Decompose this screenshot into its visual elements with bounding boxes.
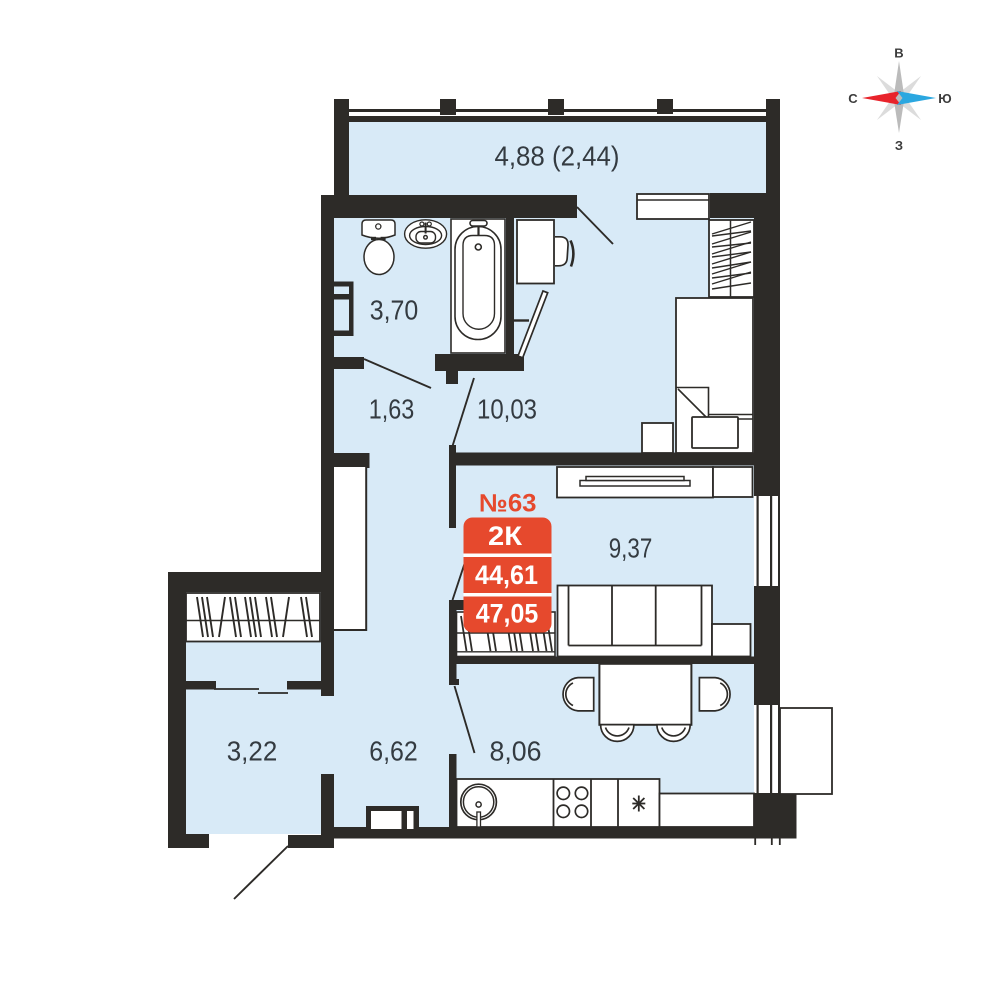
svg-text:10,03: 10,03 bbox=[477, 394, 537, 425]
svg-text:2К: 2К bbox=[488, 521, 523, 551]
svg-text:С: С bbox=[848, 91, 858, 106]
svg-text:4,88 (2,44): 4,88 (2,44) bbox=[495, 141, 620, 172]
svg-text:№63: №63 bbox=[479, 490, 537, 518]
svg-text:З: З bbox=[895, 138, 903, 153]
svg-text:Ю: Ю bbox=[938, 91, 951, 106]
svg-text:1,63: 1,63 bbox=[369, 394, 415, 425]
svg-text:3,70: 3,70 bbox=[370, 295, 419, 326]
svg-text:6,62: 6,62 bbox=[369, 736, 418, 767]
svg-text:В: В bbox=[894, 46, 903, 61]
svg-text:8,06: 8,06 bbox=[490, 736, 542, 767]
svg-text:44,61: 44,61 bbox=[475, 560, 538, 590]
svg-text:3,22: 3,22 bbox=[227, 736, 278, 767]
svg-text:9,37: 9,37 bbox=[609, 533, 653, 564]
svg-text:47,05: 47,05 bbox=[476, 599, 539, 629]
